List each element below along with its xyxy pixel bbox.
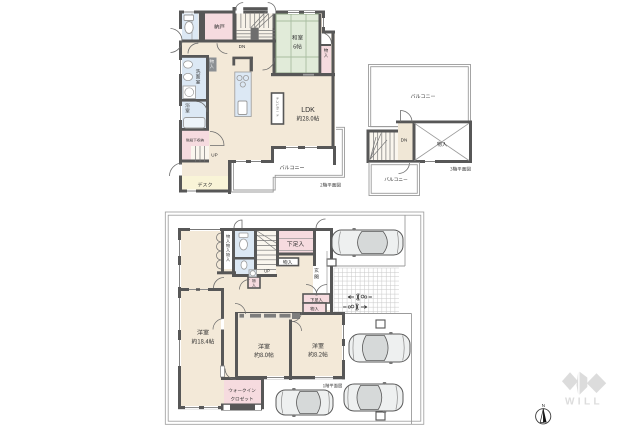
svg-text:WILL: WILL (565, 397, 603, 408)
svg-text:LDK: LDK (301, 107, 315, 114)
svg-text:UP: UP (264, 269, 270, 274)
svg-text:DN: DN (239, 44, 246, 49)
svg-text:DN: DN (401, 138, 408, 143)
svg-text:N: N (542, 403, 546, 409)
svg-text:UP: UP (211, 153, 217, 158)
